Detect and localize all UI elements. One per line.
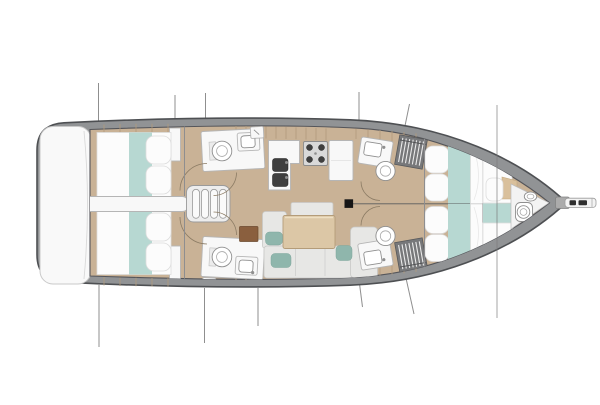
pillow bbox=[425, 174, 449, 201]
pillow bbox=[146, 243, 171, 271]
pillow bbox=[146, 213, 171, 241]
stair-step bbox=[211, 189, 218, 218]
toilet bbox=[376, 161, 395, 180]
pillow bbox=[425, 235, 449, 262]
stove-burner bbox=[307, 145, 313, 151]
bowsprit bbox=[556, 197, 597, 209]
yacht-floor-plan: Sailing yacht interior layout — top-down… bbox=[0, 0, 600, 400]
pillow bbox=[486, 178, 503, 201]
bench-seat bbox=[291, 203, 333, 217]
stove-burner bbox=[319, 157, 325, 163]
toilet bbox=[212, 247, 233, 268]
galley-sink bbox=[273, 159, 289, 172]
floor-plan-canvas: Sailing yacht interior layout — top-down… bbox=[0, 0, 600, 400]
hanging-locker bbox=[395, 135, 428, 169]
throw-pillow bbox=[271, 254, 291, 268]
throw-pillow bbox=[336, 246, 352, 261]
salon-table bbox=[283, 216, 335, 249]
pillow bbox=[425, 207, 449, 234]
stair-step bbox=[193, 189, 200, 218]
pillow bbox=[146, 166, 171, 194]
pillow bbox=[425, 146, 449, 173]
galley-sink bbox=[273, 174, 289, 187]
aft-cabin-port bbox=[97, 128, 181, 198]
anchor-roller-mark bbox=[579, 200, 588, 205]
stove-burner bbox=[319, 145, 325, 151]
bed-runner bbox=[448, 146, 471, 204]
toilet bbox=[212, 141, 233, 162]
throw-pillow bbox=[266, 232, 283, 245]
side-cabinet bbox=[240, 227, 259, 242]
toilet bbox=[517, 206, 530, 219]
sink-basin bbox=[239, 260, 254, 273]
aft-head-port-unit bbox=[201, 126, 266, 171]
aft-cabin-starboard bbox=[97, 210, 181, 280]
stair-step bbox=[202, 189, 209, 218]
stove-burner bbox=[307, 157, 313, 163]
faucet bbox=[285, 161, 288, 164]
faucet bbox=[285, 176, 288, 179]
toilet bbox=[376, 226, 395, 245]
stove-knob bbox=[314, 152, 317, 155]
anchor-roller-mark bbox=[570, 200, 577, 205]
sink-basin bbox=[363, 250, 382, 266]
mast bbox=[345, 199, 354, 208]
sink bbox=[524, 192, 536, 201]
companionway-stairs bbox=[187, 186, 231, 223]
pillow bbox=[146, 136, 171, 164]
sink-basin bbox=[363, 141, 382, 157]
swim-platform bbox=[40, 127, 91, 285]
